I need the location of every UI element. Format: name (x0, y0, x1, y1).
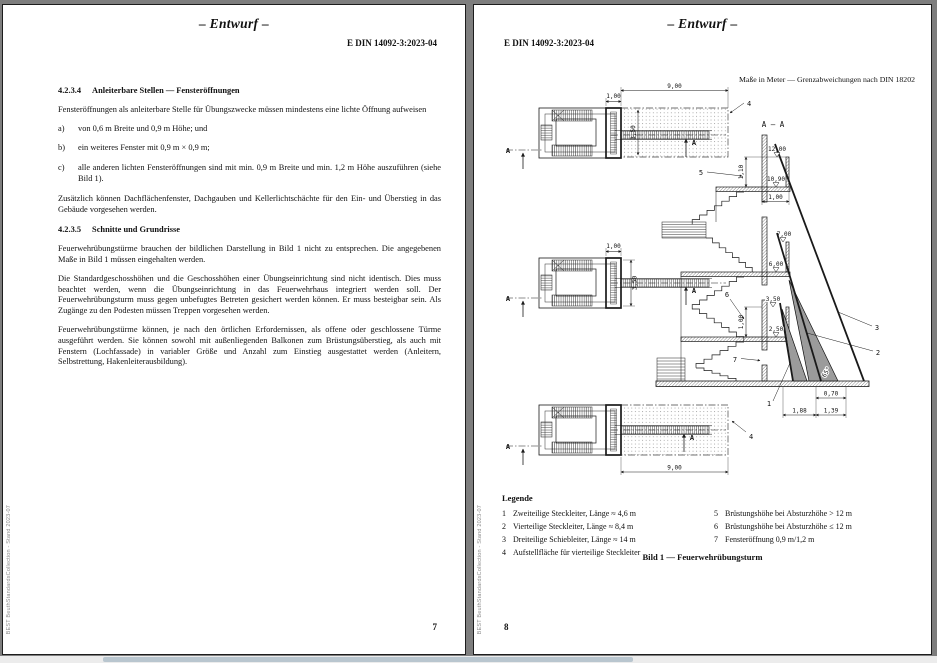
level-label: 2,50 (769, 326, 784, 333)
dim-label: 1,88 (792, 408, 807, 415)
callout-7: 7 (733, 356, 737, 364)
legend-text: Vierteilige Steckleiter, Länge ≈ 8,4 m (513, 520, 633, 533)
legend-num: 3 (502, 533, 506, 546)
paragraph: Die Standardgeschosshöhen und die Gescho… (58, 274, 441, 317)
legend-title: Legende (502, 492, 919, 505)
pdf-viewer: { "doc": { "draft_label": "– Entwurf –",… (0, 0, 937, 663)
legend-text: Brüstungshöhe bei Absturzhöhe ≤ 12 m (725, 520, 852, 533)
document-page-left: – Entwurf – E DIN 14092-3:2023-04 4.2.3.… (2, 4, 466, 655)
dim-label: 9,00 (667, 83, 682, 90)
legend-item: 6 Brüstungshöhe bei Absturzhöhe ≤ 12 m (714, 520, 919, 533)
section-heading: 4.2.3.4 Anleiterbare Stellen — Fensteröf… (58, 86, 441, 97)
callout-5: 5 (699, 169, 703, 177)
figure-bild1: 1,00 9,00 3,50 A A 4 1 (494, 65, 904, 485)
dim-label: 3,50 (632, 275, 639, 290)
document-page-right: – Entwurf – E DIN 14092-3:2023-04 Maße i… (473, 4, 932, 655)
legend-text: Brüstungshöhe bei Absturzhöhe > 12 m (725, 507, 852, 520)
section-view-title: A – A (762, 120, 785, 129)
legend-num: 1 (502, 507, 506, 520)
body-text: 4.2.3.4 Anleiterbare Stellen — Fensteröf… (58, 76, 441, 376)
dim-label: 9,00 (667, 465, 682, 472)
dim-label: 1,00 (768, 194, 783, 201)
watermark-text: BEST BeuthStandardsCollection - Stand 20… (477, 505, 483, 634)
section-callouts: 5 6 7 1 2 3 (699, 169, 880, 408)
section-title: Schnitte und Grundrisse (92, 225, 180, 236)
dim-label: 1,00 (738, 314, 745, 329)
section-heading: 4.2.3.5 Schnitte und Grundrisse (58, 225, 441, 236)
list-item: a) von 0,6 m Breite und 0,9 m Höhe; und (58, 124, 441, 135)
level-label: 10,90 (767, 176, 785, 183)
stair-landing-stack (657, 222, 706, 381)
scrollbar-thumb[interactable] (103, 657, 633, 662)
legend-text: Fensteröffnung 0,9 m/1,2 m (725, 533, 814, 546)
list-text: alle anderen lichten Fensteröffnungen si… (78, 163, 441, 185)
watermark-text: BEST BeuthStandardsCollection - Stand 20… (6, 505, 12, 634)
dim-label: 1,39 (824, 408, 839, 415)
section-mark-a: A (506, 295, 511, 303)
list-item: b) ein weiteres Fenster mit 0,9 m × 0,9 … (58, 143, 441, 154)
doc-number: E DIN 14092-3:2023-04 (347, 38, 437, 48)
dim-label: 1,00 (606, 93, 621, 100)
dim-label: 1,10 (738, 164, 745, 179)
figure-caption: Bild 1 — Feuerwehrübungsturm (474, 552, 931, 562)
section-mark-a: A (692, 287, 697, 295)
legend-num: 2 (502, 520, 506, 533)
legend-item: 2 Vierteilige Steckleiter, Länge ≈ 8,4 m (502, 520, 688, 533)
list-text: ein weiteres Fenster mit 0,9 m × 0,9 m; (78, 143, 441, 154)
section-mark-a: A (506, 147, 511, 155)
callout-1: 1 (767, 400, 771, 408)
legend-text: Zweiteilige Steckleiter, Länge ≈ 4,6 m (513, 507, 636, 520)
page-number: 8 (504, 622, 509, 632)
section-title: Anleiterbare Stellen — Fensteröffnungen (92, 86, 240, 97)
legend-item: 5 Brüstungshöhe bei Absturzhöhe > 12 m (714, 507, 919, 520)
dim-label: 0,70 (824, 391, 839, 398)
callout-4: 4 (749, 433, 753, 441)
dim-label: 1,00 (606, 243, 621, 250)
section-view: A – A (656, 120, 880, 418)
legend-num: 6 (714, 520, 718, 533)
level-label: 6,00 (769, 261, 784, 268)
legend-num: 5 (714, 507, 718, 520)
level-label: 7,00 (777, 231, 792, 238)
callout-3: 3 (875, 324, 879, 332)
plan-bottom: A A 9,00 4 (506, 405, 753, 475)
legend-num: 7 (714, 533, 718, 546)
list-text: von 0,6 m Breite und 0,9 m Höhe; und (78, 124, 441, 135)
page-number: 7 (433, 622, 438, 632)
figure-legend: Legende 1 Zweiteilige Steckleiter, Länge… (502, 492, 919, 559)
legend-item: 1 Zweiteilige Steckleiter, Länge ≈ 4,6 m (502, 507, 688, 520)
dim-label: 3,50 (630, 125, 637, 140)
level-label: 12,00 (768, 146, 786, 153)
legend-item: 3 Dreiteilige Schiebleiter, Länge ≈ 14 m (502, 533, 688, 546)
list-marker: b) (58, 143, 78, 154)
section-mark-a: A (506, 443, 511, 451)
paragraph: Zusätzlich können Dachflächenfenster, Da… (58, 194, 441, 216)
draft-label: – Entwurf – (474, 16, 931, 32)
paragraph: Fensteröffnungen als anleiterbare Stelle… (58, 105, 441, 116)
level-label: 3,50 (766, 296, 781, 303)
plan-top: 1,00 9,00 3,50 A A 4 (506, 83, 751, 169)
legend-text: Dreiteilige Schiebleiter, Länge ≈ 14 m (513, 533, 636, 546)
list-marker: a) (58, 124, 78, 135)
doc-number: E DIN 14092-3:2023-04 (504, 38, 594, 48)
callout-6: 6 (725, 291, 729, 299)
section-number: 4.2.3.4 (58, 86, 81, 97)
callout-4: 4 (747, 100, 751, 108)
paragraph: Feuerwehrübungstürme brauchen der bildli… (58, 244, 441, 266)
list-item: c) alle anderen lichten Fensteröffnungen… (58, 163, 441, 185)
draft-label: – Entwurf – (3, 16, 465, 32)
horizontal-scrollbar[interactable] (0, 656, 937, 663)
plan-middle: 1,00 3,50 A A (506, 243, 726, 317)
legend-item: 7 Fensteröffnung 0,9 m/1,2 m (714, 533, 919, 546)
paragraph: Feuerwehrübungstürme können, je nach den… (58, 325, 441, 368)
section-number: 4.2.3.5 (58, 225, 81, 236)
list-marker: c) (58, 163, 78, 185)
callout-2: 2 (876, 349, 880, 357)
